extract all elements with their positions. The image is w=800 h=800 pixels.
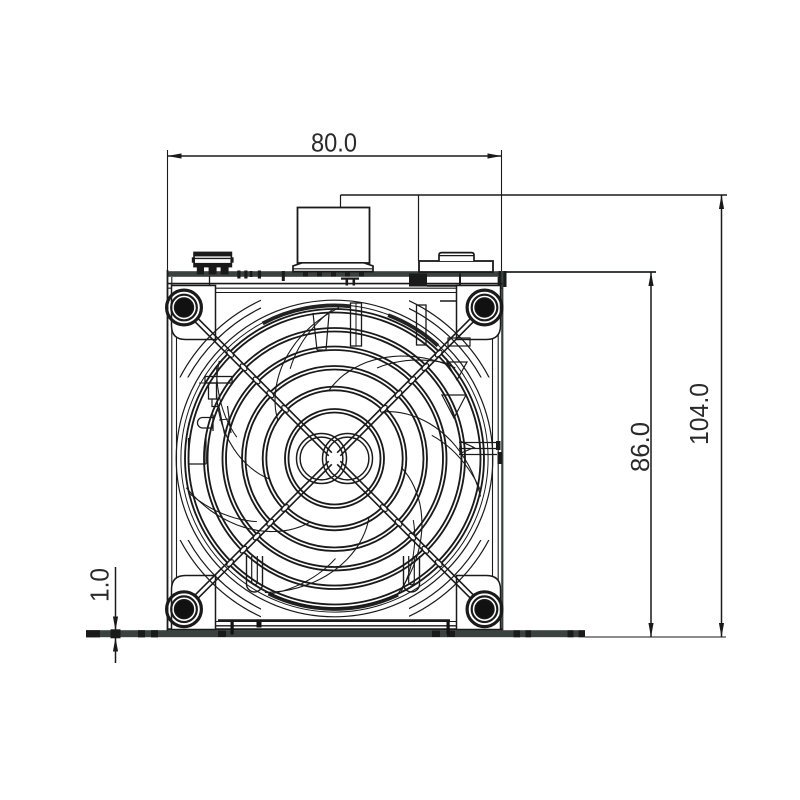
svg-text:104.0: 104.0 bbox=[684, 383, 714, 445]
svg-text:1.0: 1.0 bbox=[85, 568, 115, 602]
svg-text:80.0: 80.0 bbox=[311, 128, 357, 158]
svg-text:86.0: 86.0 bbox=[625, 422, 655, 472]
